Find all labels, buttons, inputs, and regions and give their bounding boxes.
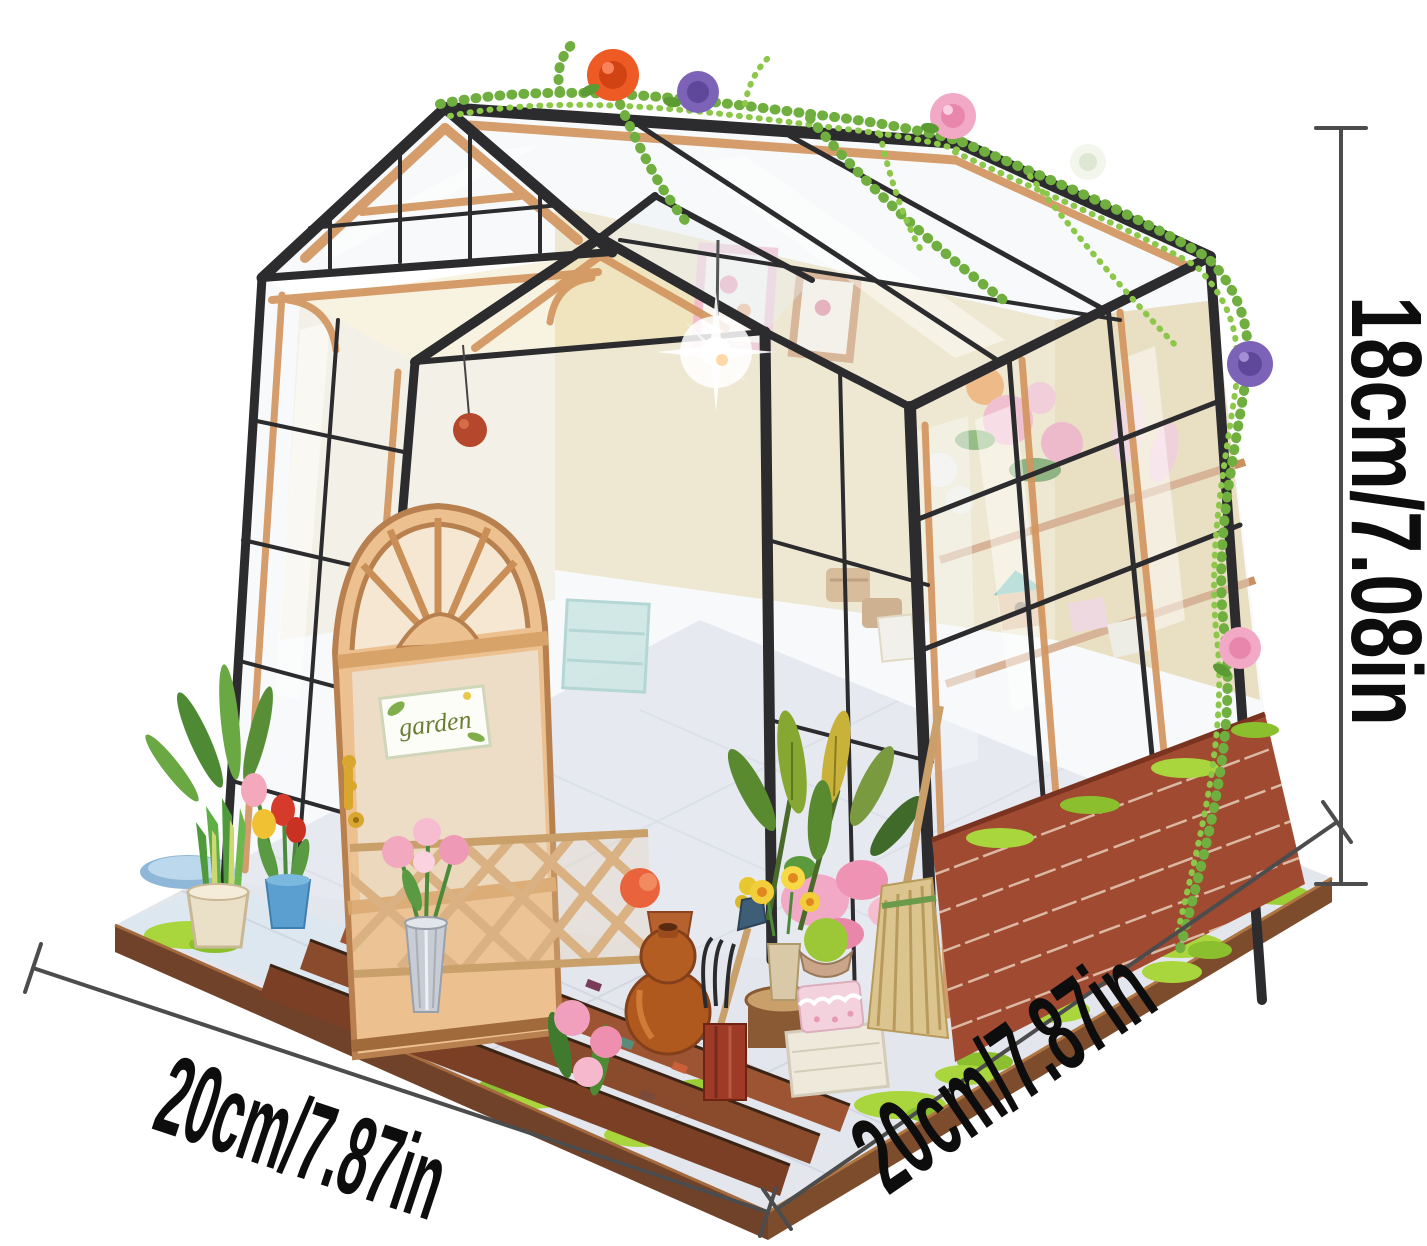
product-photo: garden bbox=[0, 0, 1427, 1246]
greenhouse-illustration: garden bbox=[0, 0, 1427, 1246]
dimension-height: 18cm/7.08in bbox=[1316, 128, 1427, 884]
height-dimension-label: 18cm/7.08in bbox=[1330, 296, 1427, 726]
moss-ball bbox=[804, 918, 848, 962]
garden-sign: garden bbox=[380, 686, 491, 758]
